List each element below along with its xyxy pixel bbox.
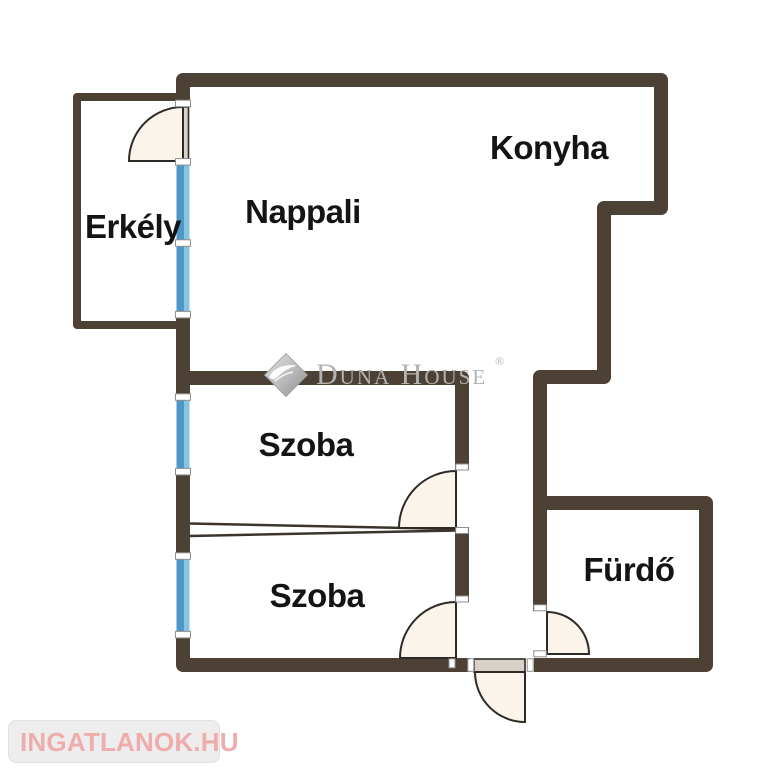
window-cap <box>176 394 191 401</box>
jamb-mark <box>176 100 191 107</box>
window-cap <box>176 553 191 560</box>
duna-house-diamond-icon <box>263 352 309 398</box>
window-cap <box>176 311 191 318</box>
watermark-brand-text: Duna House <box>316 360 487 390</box>
room-label-szoba-felso: Szoba <box>259 426 354 464</box>
window-3-highlight <box>184 400 190 470</box>
window-1-highlight <box>184 165 190 241</box>
window-cap <box>176 631 191 638</box>
jamb-mark <box>456 596 469 602</box>
ingatlanok-logo: INGATLANOK.HU <box>8 720 220 763</box>
floor-plan-page: Nappali Konyha Erkély Szoba Szoba Fürdő … <box>0 0 768 768</box>
szoba-lower-door-arc <box>400 602 456 658</box>
jamb-mark <box>534 605 547 611</box>
entrance-jamb-right <box>527 659 533 672</box>
furdo-door-arc <box>547 612 589 654</box>
room-label-erkely: Erkély <box>85 208 181 246</box>
jamb-mark <box>449 659 455 668</box>
entrance-jamb-left <box>468 659 474 672</box>
jamb-mark <box>456 528 469 534</box>
room-label-konyha: Konyha <box>490 129 608 167</box>
duna-house-watermark: Duna House ® <box>263 352 504 398</box>
ingatlanok-logo-text: INGATLANOK.HU <box>20 729 239 755</box>
room-label-szoba-also: Szoba <box>270 577 365 615</box>
partition-line-bottom <box>190 531 456 537</box>
registered-trademark-symbol: ® <box>495 354 504 369</box>
jamb-mark <box>456 464 469 470</box>
jamb-mark <box>534 651 547 657</box>
balcony-door-arc <box>129 107 183 161</box>
window-4-highlight <box>184 559 190 633</box>
jamb-mark <box>176 159 191 166</box>
window-2-highlight <box>184 246 190 312</box>
window-cap <box>176 468 191 475</box>
szoba-upper-door-arc <box>399 471 456 528</box>
entrance-door-leaf <box>474 659 525 672</box>
entrance-door-arc <box>475 672 525 722</box>
room-label-nappali: Nappali <box>245 193 361 231</box>
room-label-furdo: Fürdő <box>584 551 675 589</box>
